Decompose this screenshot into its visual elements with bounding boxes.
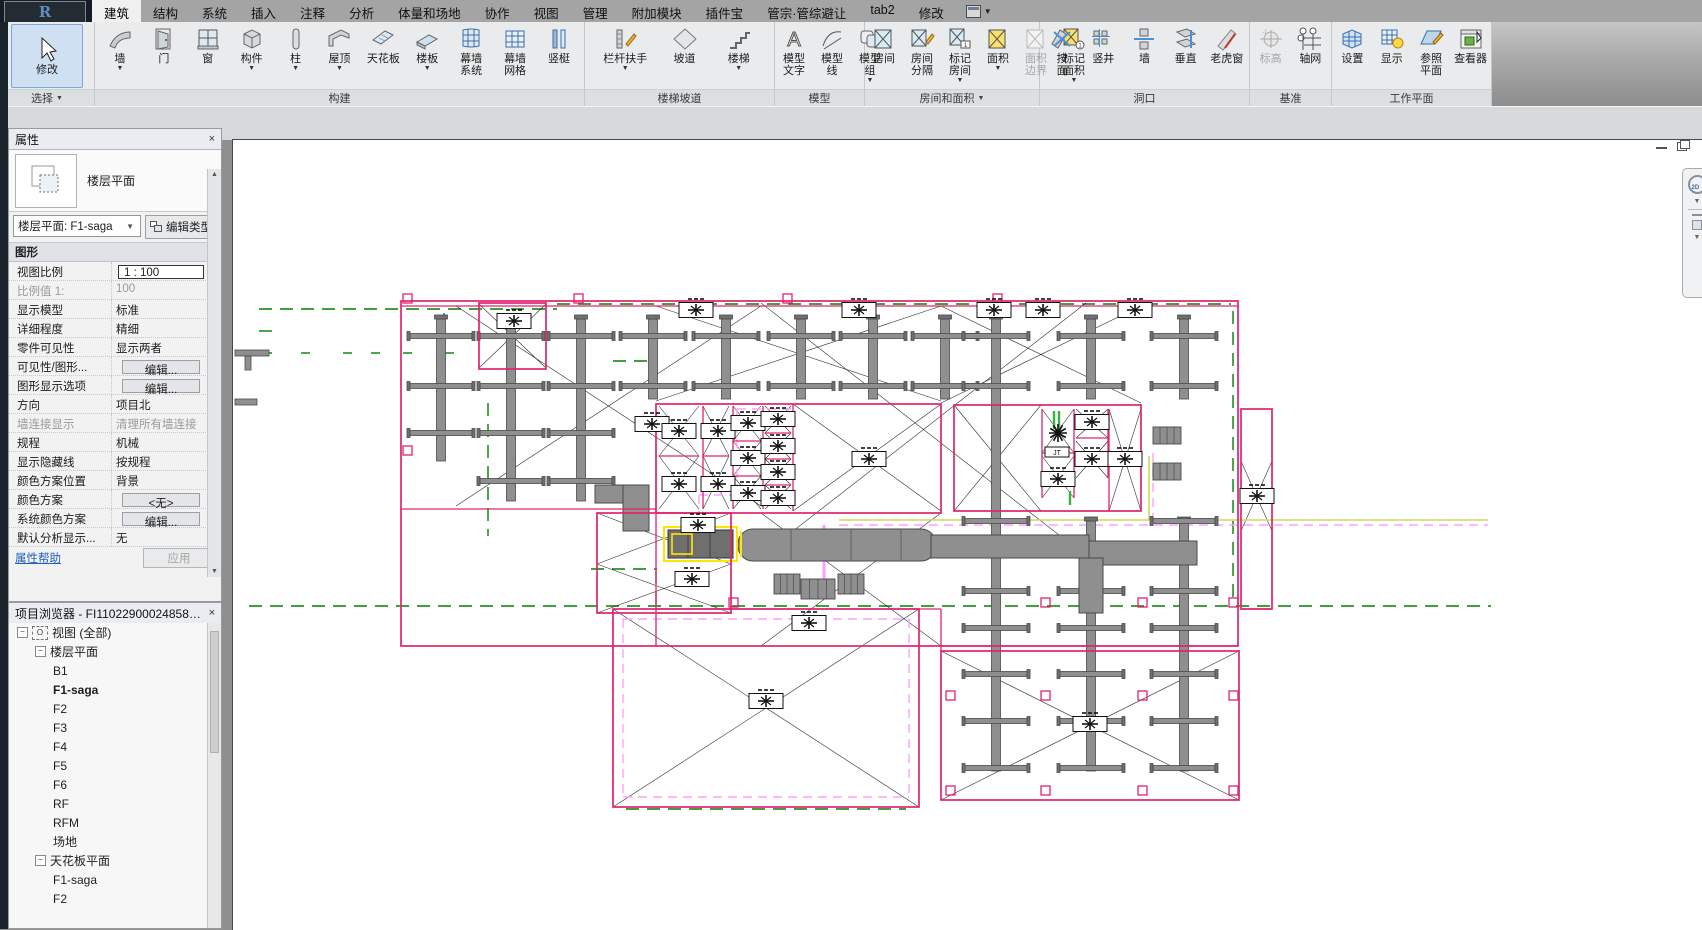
tree-item-RFM[interactable]: RFM: [9, 813, 208, 832]
ribbon-button-label: 窗: [202, 53, 213, 65]
curtain-icon: [456, 25, 486, 53]
ribbon-panel-4: 房间房间分隔1标记房间▼面积▼面积边界1标记面积▼房间和面积▼: [865, 22, 1040, 106]
property-button[interactable]: 编辑...: [122, 379, 200, 393]
property-label: 图形显示选项: [9, 376, 111, 394]
close-icon[interactable]: ×: [209, 133, 215, 145]
refplane-icon: [1416, 25, 1446, 53]
ribbon-button-label2: 面: [1057, 65, 1068, 77]
wpshow-icon: [1377, 25, 1407, 53]
ribbon: 修改选择▼墙▼门窗构件▼柱▼屋顶▼天花板楼板▼幕墙系统幕墙网格竖梃构建栏杆扶手▼…: [0, 22, 1702, 107]
ribbon-panel-7: 设置显示参照平面查看器工作平面: [1332, 22, 1492, 106]
ribbon-button-幕墙网格[interactable]: 幕墙网格: [496, 24, 534, 88]
tree-item-label: 视图 (全部): [52, 624, 111, 641]
property-row-1: 比例值 1:100: [9, 281, 208, 300]
vertical-icon: [1171, 25, 1201, 53]
view-scale-input[interactable]: 1 : 100: [118, 265, 204, 279]
property-label: 默认分析显示...: [9, 528, 111, 546]
ribbon-button-label: 参照: [1420, 53, 1442, 65]
panel-label-模型[interactable]: 模型: [775, 89, 864, 106]
ribbon-button-参照平面[interactable]: 参照平面: [1412, 24, 1450, 88]
properties-scrollbar[interactable]: ▲▼: [207, 169, 221, 577]
ribbon-empty-area: [1492, 22, 1702, 106]
ribbon-button-幕墙系统[interactable]: 幕墙系统: [452, 24, 490, 88]
ribbon-button-模型线[interactable]: 模型线: [813, 24, 851, 88]
property-label: 可见性/图形...: [9, 357, 111, 375]
edit-type-label: 编辑类型: [166, 219, 212, 235]
apply-button[interactable]: 应用: [143, 548, 215, 568]
property-label: 视图比例: [9, 262, 111, 280]
property-row-9: 规程机械: [9, 433, 208, 452]
property-value[interactable]: 无: [111, 528, 208, 546]
tree-item-label: RFM: [53, 816, 79, 830]
tab-ribbon-7[interactable]: 协作: [473, 0, 522, 22]
property-value: 编辑...: [111, 357, 208, 375]
pan-tool-icon[interactable]: [1692, 220, 1702, 230]
tree-expand-icon[interactable]: −: [17, 627, 28, 638]
cursor-icon: [32, 36, 62, 64]
tree-item-F4[interactable]: F4: [9, 737, 208, 756]
property-label: 显示隐藏线: [9, 452, 111, 470]
zoom-tool-icon[interactable]: [1688, 175, 1702, 194]
ribbon-button-label2: 房间: [949, 65, 971, 77]
ribbon-button-label: 楼板: [416, 53, 438, 65]
property-row-13: 系统颜色方案编辑...: [9, 509, 208, 528]
chevron-down-icon[interactable]: ▼: [995, 65, 1002, 72]
property-value[interactable]: 100: [111, 281, 208, 299]
ribbon-button-label: 栏杆扶手: [603, 53, 647, 65]
ribbon-button-label: 坡道: [674, 53, 696, 65]
tree-item-F2[interactable]: F2: [9, 699, 208, 718]
type-selector-dropdown[interactable]: 楼层平面: F1-saga ▼: [13, 215, 141, 237]
roof-icon: [324, 25, 354, 53]
property-row-14: 默认分析显示...无: [9, 528, 208, 547]
ribbon-button-label2: 线: [827, 65, 838, 77]
tab-ribbon-5[interactable]: 分析: [337, 0, 386, 22]
ribbon-button-label: 屋顶: [328, 53, 350, 65]
stair-icon: [724, 25, 754, 53]
ribbon-button-构件[interactable]: 构件▼: [233, 24, 271, 88]
property-label: 显示模型: [9, 300, 111, 318]
tree-item-label: F6: [53, 778, 67, 792]
ribbon-button-老虎窗[interactable]: 老虎窗: [1208, 24, 1246, 88]
ribbon-button-label2: 分隔: [911, 65, 933, 77]
tab-ribbon-2[interactable]: 系统: [190, 0, 239, 22]
tab-ribbon-4[interactable]: 注释: [288, 0, 337, 22]
component-icon: [237, 25, 267, 53]
tree-item-视图 (全部)[interactable]: −O视图 (全部): [9, 623, 208, 642]
property-value[interactable]: 机械: [111, 433, 208, 451]
tree-item-label: B1: [53, 664, 68, 678]
type-preview-label: 楼层平面: [87, 172, 195, 189]
svg-text:A: A: [787, 29, 801, 51]
property-value[interactable]: 标准: [111, 300, 208, 318]
tree-item-label: F2: [53, 892, 67, 906]
ribbon-panel-2: 栏杆扶手▼坡道楼梯▼楼梯坡道: [585, 22, 775, 106]
ribbon-button-label: 标记: [949, 53, 971, 65]
ribbon-panel-0: 修改选择▼: [0, 22, 95, 106]
app-tab-bar: R 建筑结构系统插入注释分析体量和场地协作视图管理附加模块插件宝管宗·管综避让t…: [0, 0, 1702, 22]
ribbon-panel-3: A模型文字模型线模型组▼模型: [775, 22, 865, 106]
curtaingrid-icon: [500, 25, 530, 53]
mline-icon: [817, 25, 847, 53]
tree-item-场地[interactable]: 场地: [9, 832, 208, 851]
ribbon-button-垂直[interactable]: 垂直: [1167, 24, 1205, 88]
ribbon-button-label: 查看器: [1454, 53, 1487, 65]
ribbon-button-label: 门: [158, 53, 169, 65]
type-thumbnail[interactable]: [15, 154, 77, 208]
tree-item-label: 天花板平面: [50, 852, 110, 869]
ribbon-button-标高: -1标高: [1252, 24, 1290, 88]
property-value[interactable]: 精细: [111, 319, 208, 337]
tree-item-label: 场地: [53, 833, 77, 850]
edit-type-icon: [150, 221, 163, 233]
project-browser-palette: 项目浏览器 - FI110229000248580ef... × −O视图 (全…: [8, 602, 222, 929]
chevron-down-icon[interactable]: ▼: [336, 65, 343, 72]
ribbon-button-栏杆扶手[interactable]: 栏杆扶手▼: [601, 24, 649, 88]
tree-expand-icon[interactable]: −: [35, 855, 46, 866]
property-label: 颜色方案位置: [9, 471, 111, 489]
app-logo-zone: R: [0, 0, 92, 22]
floor-icon: [412, 25, 442, 53]
project-browser-scrollbar[interactable]: [207, 623, 221, 928]
ribbon-button-label: 墙: [1139, 53, 1150, 65]
property-label: 方向: [9, 395, 111, 413]
property-label: 规程: [9, 433, 111, 451]
tab-ribbon-9[interactable]: 管理: [571, 0, 620, 22]
ribbon-button-楼梯[interactable]: 楼梯▼: [720, 24, 758, 88]
properties-palette: 属性 × 楼层平面 ▼ 楼层平面: F1-saga ▼ 编辑类型 图形 ⌃ 视图…: [8, 128, 222, 602]
ribbon-button-轴网[interactable]: 轴网: [1291, 24, 1329, 88]
property-value: <无>: [111, 490, 208, 508]
tree-item-label: F1-saga: [53, 683, 98, 697]
ribbon-button-墙[interactable]: 墙▼: [101, 24, 139, 88]
wallop-icon: [1129, 25, 1159, 53]
tree-item-F2[interactable]: F2: [9, 889, 208, 908]
application-menu-button[interactable]: R: [4, 1, 86, 23]
tree-item-label: F1-saga: [53, 873, 97, 887]
restore-icon[interactable]: [1677, 140, 1690, 151]
ribbon-button-房间分隔[interactable]: 房间分隔: [903, 24, 941, 88]
revit-logo-icon: R: [39, 3, 51, 21]
mullion-icon: [544, 25, 574, 53]
options-bar: [0, 106, 1702, 140]
tab-ribbon-10[interactable]: 附加模块: [620, 0, 694, 22]
ribbon-button-label: 模型: [783, 53, 805, 65]
ribbon-button-修改[interactable]: 修改: [11, 24, 83, 88]
ribbon-button-label: 模型: [821, 53, 843, 65]
type-preview: 楼层平面 ▼: [9, 150, 221, 212]
ribbon-button-label: 设置: [1341, 53, 1363, 65]
property-value: 编辑...: [111, 376, 208, 394]
ribbon-button-label: 面积: [987, 53, 1009, 65]
ribbon-button-设置[interactable]: 设置: [1333, 24, 1371, 88]
property-value[interactable]: 背景: [111, 471, 208, 489]
property-label: 比例值 1:: [9, 281, 111, 299]
ribbon-button-竖井[interactable]: 竖井: [1084, 24, 1122, 88]
close-icon[interactable]: ×: [209, 607, 215, 619]
property-label: 详细程度: [9, 319, 111, 337]
tree-item-RF[interactable]: RF: [9, 794, 208, 813]
tree-item-F1-saga[interactable]: F1-saga: [9, 870, 208, 889]
ribbon-button-label: 轴网: [1299, 53, 1321, 65]
minimize-icon[interactable]: [1655, 140, 1668, 151]
plan-jt-label: JT: [1053, 450, 1062, 457]
panel-label-text: 基准: [1280, 90, 1302, 106]
ribbon-button-按面[interactable]: 按面: [1043, 24, 1081, 88]
column-icon: [281, 25, 311, 53]
ribbon-button-房间[interactable]: 房间: [865, 24, 903, 88]
panel-label-工作平面[interactable]: 工作平面: [1332, 89, 1491, 106]
ribbon-button-label: 垂直: [1175, 53, 1197, 65]
property-label: 墙连接显示: [9, 414, 111, 432]
ribbon-button-竖梃[interactable]: 竖梃: [540, 24, 578, 88]
panel-label-text: 房间和面积: [920, 90, 975, 106]
ceiling-icon: [368, 25, 398, 53]
ribbon-button-label: 竖井: [1092, 53, 1114, 65]
ribbon-button-label: 幕墙: [460, 53, 482, 65]
tree-item-label: F3: [53, 721, 67, 735]
property-row-3: 详细程度精细: [9, 319, 208, 338]
ribbon-button-label2: 文字: [783, 65, 805, 77]
properties-title-bar[interactable]: 属性 ×: [9, 129, 221, 150]
chevron-down-icon[interactable]: ▼: [292, 65, 299, 72]
panel-label-楼梯坡道[interactable]: 楼梯坡道: [585, 89, 774, 106]
ribbon-button-天花板[interactable]: 天花板: [364, 24, 402, 88]
tree-item-label: RF: [53, 797, 69, 811]
wall-icon: [105, 25, 135, 53]
property-row-8: 墙连接显示清理所有墙连接: [9, 414, 208, 433]
property-row-5: 可见性/图形...编辑...: [9, 357, 208, 376]
ribbon-button-楼板[interactable]: 楼板▼: [408, 24, 446, 88]
ribbon-panel-6: -1标高轴网基准: [1250, 22, 1332, 106]
property-row-6: 图形显示选项编辑...: [9, 376, 208, 395]
roomsep-icon: [907, 25, 937, 53]
left-window-edge: [0, 22, 8, 929]
floorplan-thumbnail-icon: [26, 163, 66, 199]
project-browser-tree: −O视图 (全部)−楼层平面B1F1-sagaF2F3F4F5F6RFRFM场地…: [9, 623, 208, 928]
chevron-down-icon: ▼: [126, 222, 134, 231]
ribbon-button-坡道[interactable]: 坡道: [666, 24, 704, 88]
ribbon-button-显示[interactable]: 显示: [1373, 24, 1411, 88]
property-row-2: 显示模型标准: [9, 300, 208, 319]
property-row-7: 方向项目北: [9, 395, 208, 414]
door-icon: [149, 25, 179, 53]
ribbon-panel-1: 墙▼门窗构件▼柱▼屋顶▼天花板楼板▼幕墙系统幕墙网格竖梃构建: [95, 22, 585, 106]
properties-title: 属性: [15, 131, 203, 148]
ribbon-button-label: 显示: [1381, 53, 1403, 65]
tree-item-F5[interactable]: F5: [9, 756, 208, 775]
chevron-down-icon[interactable]: ▼: [735, 65, 742, 72]
area-icon: [983, 25, 1013, 53]
chevron-down-icon[interactable]: ▼: [1694, 198, 1701, 205]
navigation-bar[interactable]: ▼ ▼: [1682, 168, 1702, 298]
tab-ribbon-0[interactable]: 建筑: [92, 0, 141, 22]
tree-item-F1-saga[interactable]: F1-saga: [9, 680, 208, 699]
type-selector-value: 楼层平面: F1-saga: [18, 218, 122, 234]
ribbon-tabs: 建筑结构系统插入注释分析体量和场地协作视图管理附加模块插件宝管宗·管综避让tab…: [92, 0, 992, 22]
panel-label-text: 选择: [31, 90, 53, 106]
property-button[interactable]: <无>: [122, 493, 200, 507]
ribbon-button-label2: 系统: [460, 65, 482, 77]
chevron-down-icon[interactable]: ▼: [56, 95, 63, 102]
chevron-down-icon[interactable]: ▼: [1694, 234, 1701, 241]
room-icon: [869, 25, 899, 53]
tree-item-label: F2: [53, 702, 67, 716]
window-icon: [193, 25, 223, 53]
chevron-down-icon[interactable]: ▼: [984, 7, 992, 16]
chevron-down-icon[interactable]: ▼: [248, 65, 255, 72]
tree-item-F3[interactable]: F3: [9, 718, 208, 737]
property-row-10: 显示隐藏线按规程: [9, 452, 208, 471]
project-browser-title: 项目浏览器 - FI110229000248580ef...: [15, 605, 203, 622]
tab-ribbon-8[interactable]: 视图: [522, 0, 571, 22]
tab-ribbon-3[interactable]: 插入: [239, 0, 288, 22]
panel-label-text: 工作平面: [1390, 90, 1434, 106]
ribbon-button-label: 房间: [911, 53, 933, 65]
graphics-section-header[interactable]: 图形 ⌃: [9, 243, 221, 262]
panel-label-text: 模型: [809, 90, 831, 106]
views-icon: O: [32, 626, 48, 640]
tree-expand-icon[interactable]: −: [35, 646, 46, 657]
tagroom-icon: 1: [945, 25, 975, 53]
property-label: 颜色方案: [9, 490, 111, 508]
panel-label-text: 洞口: [1134, 90, 1156, 106]
ribbon-button-墙[interactable]: 墙: [1125, 24, 1163, 88]
panel-label-text: 构建: [329, 90, 351, 106]
tab-ribbon-1[interactable]: 结构: [141, 0, 190, 22]
chevron-down-icon[interactable]: ▼: [978, 95, 985, 102]
ribbon-state-icon[interactable]: [966, 5, 981, 18]
floor-plan-view[interactable]: JT: [233, 140, 1702, 930]
property-value: 编辑...: [111, 509, 208, 527]
ribbon-button-label2: 网格: [504, 65, 526, 77]
viewer-icon: [1456, 25, 1486, 53]
steeringwheel-icon[interactable]: [1692, 214, 1702, 216]
tab-tab2[interactable]: tab2: [858, 0, 906, 22]
ramp-icon: [670, 25, 700, 53]
tree-item-label: F5: [53, 759, 67, 773]
tree-item-天花板平面[interactable]: −天花板平面: [9, 851, 208, 870]
ribbon-button-面积[interactable]: 面积▼: [979, 24, 1017, 88]
byface-icon: [1047, 25, 1077, 53]
ribbon-button-label2: 平面: [1420, 65, 1442, 77]
tab-ribbon-6[interactable]: 体量和场地: [386, 0, 473, 22]
ribbon-button-label: 墙: [114, 53, 125, 65]
mtext-icon: A: [779, 25, 809, 53]
ribbon-button-label: 构件: [241, 53, 263, 65]
properties-help-link[interactable]: 属性帮助: [15, 550, 135, 566]
wpset-icon: [1337, 25, 1367, 53]
tree-item-F6[interactable]: F6: [9, 775, 208, 794]
panel-label-选择[interactable]: 选择▼: [0, 89, 94, 106]
level-icon: -1: [1256, 25, 1286, 53]
property-value[interactable]: 清理所有墙连接: [111, 414, 208, 432]
tree-item-label: F4: [53, 740, 67, 754]
chevron-down-icon[interactable]: ▼: [622, 65, 629, 72]
chevron-down-icon[interactable]: ▼: [116, 65, 123, 72]
shaft-icon: [1088, 25, 1118, 53]
ribbon-panel-5: 按面竖井墙垂直老虎窗洞口: [1040, 22, 1250, 106]
ribbon-button-label: 天花板: [367, 53, 400, 65]
graphics-section-label: 图形: [15, 244, 38, 260]
ribbon-button-label: 幕墙: [504, 53, 526, 65]
panel-label-洞口[interactable]: 洞口: [1040, 89, 1249, 106]
ribbon-button-label: 房间: [873, 53, 895, 65]
ribbon-button-label: 柱: [290, 53, 301, 65]
ribbon-button-屋顶[interactable]: 屋顶▼: [320, 24, 358, 88]
ribbon-button-查看器[interactable]: 查看器: [1452, 24, 1490, 88]
tab-ribbon-12[interactable]: 管宗·管综避让: [755, 0, 858, 22]
ribbon-button-柱[interactable]: 柱▼: [277, 24, 315, 88]
property-button[interactable]: 编辑...: [122, 512, 200, 526]
chevron-down-icon[interactable]: ▼: [957, 77, 964, 84]
ribbon-button-模型文字[interactable]: A模型文字: [775, 24, 813, 88]
ribbon-button-label: 按: [1057, 53, 1068, 65]
ribbon-button-label: 老虎窗: [1210, 53, 1243, 65]
panel-label-基准[interactable]: 基准: [1250, 89, 1331, 106]
property-row-11: 颜色方案位置背景: [9, 471, 208, 490]
property-row-4: 零件可见性显示两者: [9, 338, 208, 357]
railing-icon: [610, 25, 640, 53]
ribbon-button-label: 修改: [36, 64, 58, 76]
ribbon-button-标记房间[interactable]: 1标记房间▼: [941, 24, 979, 88]
ribbon-button-label: 标高: [1260, 53, 1282, 65]
panel-label-text: 楼梯坡道: [658, 90, 702, 106]
grid-icon: [1295, 25, 1325, 53]
property-value: 1 : 100: [111, 262, 208, 280]
ribbon-button-label: 楼梯: [728, 53, 750, 65]
tree-item-B1[interactable]: B1: [9, 661, 208, 680]
svg-text:-1: -1: [1262, 30, 1268, 36]
property-button[interactable]: 编辑...: [122, 360, 200, 374]
panel-label-构建[interactable]: 构建: [95, 89, 584, 106]
tree-item-楼层平面[interactable]: −楼层平面: [9, 642, 208, 661]
property-value[interactable]: 按规程: [111, 452, 208, 470]
properties-rows: 视图比例1 : 100比例值 1:100显示模型标准详细程度精细零件可见性显示两…: [9, 262, 208, 547]
property-value[interactable]: 显示两者: [111, 338, 208, 356]
property-label: 零件可见性: [9, 338, 111, 356]
property-label: 系统颜色方案: [9, 509, 111, 527]
dormer-icon: [1212, 25, 1242, 53]
tab-ribbon-11[interactable]: 插件宝: [694, 0, 756, 22]
property-value[interactable]: 项目北: [111, 395, 208, 413]
ribbon-button-窗[interactable]: 窗: [189, 24, 227, 88]
view-window-controls: [1655, 140, 1690, 151]
property-row-0: 视图比例1 : 100: [9, 262, 208, 281]
drawing-area[interactable]: JT: [232, 139, 1702, 930]
tab-ribbon-14[interactable]: 修改: [907, 0, 956, 22]
chevron-down-icon[interactable]: ▼: [424, 65, 431, 72]
project-browser-title-bar[interactable]: 项目浏览器 - FI110229000248580ef... ×: [9, 603, 221, 624]
tree-item-label: 楼层平面: [50, 643, 98, 660]
ribbon-button-门[interactable]: 门: [145, 24, 183, 88]
panel-label-房间和面积[interactable]: 房间和面积▼: [865, 89, 1039, 106]
ribbon-button-label: 竖梃: [548, 53, 570, 65]
property-row-12: 颜色方案<无>: [9, 490, 208, 509]
